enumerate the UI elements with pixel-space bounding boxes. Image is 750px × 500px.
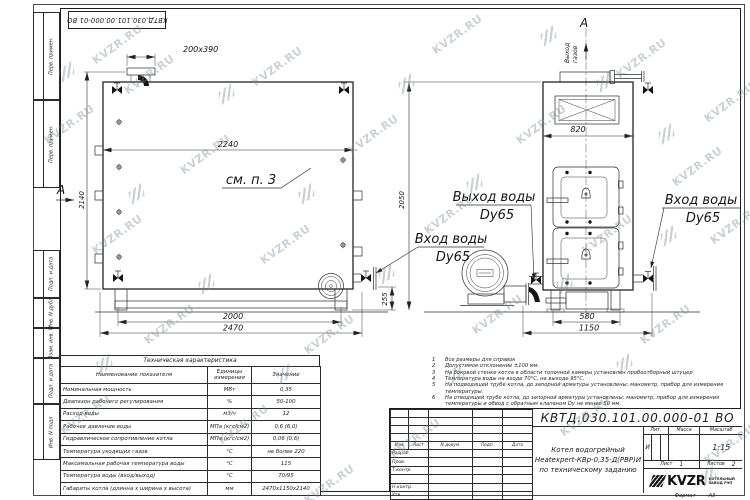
spec-cell: °С	[208, 470, 252, 482]
sign-row-label: Утв.	[391, 491, 429, 499]
spec-cell: МВт	[208, 384, 252, 396]
spec-cell: 0,35	[252, 384, 321, 396]
spec-cell: не более 220	[252, 445, 321, 457]
logo-subtitle: ЗАВОД РЭП	[709, 481, 735, 485]
spec-cell: 0,06 (0,6)	[252, 433, 321, 445]
spec-header-value: Значение	[252, 367, 321, 384]
drawing-name-line: по техническому заданию	[539, 466, 636, 474]
spec-cell: Габариты котла (длинна х ширина х высота…	[61, 483, 208, 495]
manufacturer-logo: KVZR КОТЕЛЬНЫЙ ЗАВОД РЭП	[644, 469, 742, 493]
technical-notes: 1Все размеры для справок2Допустимое откл…	[432, 357, 744, 414]
frame-column-box: Подп. и дата	[33, 250, 60, 298]
frame-left-strip: Перв. примен.Перв. примен.Подп. и датаИн…	[33, 0, 60, 500]
logo-text: KVZR	[667, 474, 705, 489]
drawing-name-cell: Котел водогрейный Heatexpert-КВр-0,35-Д(…	[532, 427, 643, 493]
drawing-name-line: Котел водогрейный	[551, 446, 625, 454]
spec-cell: °С	[208, 458, 252, 470]
spec-cell: МПа (кгс/см2)	[208, 421, 252, 433]
scale-value: 1:15	[700, 435, 742, 461]
sign-row-label: Т.контр.	[391, 466, 429, 474]
spec-row: Диапазон рабочего регулирования%50-100	[61, 396, 321, 408]
sign-row-label: Н.контр.	[391, 483, 429, 491]
format-note: Формат А3	[645, 492, 745, 500]
spec-cell: Диапазон рабочего регулирования	[61, 396, 208, 408]
title-block-right-section: Лит. Масса Масштаб И 1:15 Лист1 Листов2	[643, 427, 742, 493]
frame-column-box: Инв. N дубл	[33, 298, 60, 328]
spec-cell: мм	[208, 483, 252, 495]
mass-cell	[669, 435, 701, 461]
col-docnum: N докум.	[429, 442, 473, 450]
sign-row-label: Пров.	[391, 458, 429, 466]
doc-number-cell: КВТД.030.101.00.000-01 ВО	[532, 409, 742, 427]
spec-cell: Температура воды (вход/выход)	[61, 470, 208, 482]
col-data: Дата	[503, 442, 533, 450]
top-stamp: КВТД.030.101.00.000-01 ВО	[68, 11, 166, 29]
title-block: Изм. Лист N докум. Подп. Дата Разраб. Пр…	[389, 408, 741, 492]
title-block-left-grid: Изм. Лист N докум. Подп. Дата Разраб. Пр…	[390, 409, 533, 500]
spec-cell: 12	[252, 408, 321, 420]
frame-column-label: Взам. инв. N	[44, 329, 59, 357]
spec-cell: °С	[208, 445, 252, 457]
frame-column-box: Перв. примен.	[33, 12, 60, 100]
drawing-name-line: Heatexpert-КВр-0,35-Д(РВР)И	[535, 456, 641, 464]
spec-row: Максимальная рабочая температура воды°С1…	[61, 458, 321, 470]
sign-row-label	[391, 475, 429, 483]
note-item: 5На подводящей трубе котла, до запорной …	[432, 382, 744, 395]
spec-row: Номинальная мощностьМВт0,35	[61, 384, 321, 396]
kvzr-logo-icon	[649, 475, 666, 487]
spec-table-title: Техническая характеристика	[60, 355, 320, 366]
spec-row: Габариты котла (длинна х ширина х высота…	[61, 483, 321, 495]
spec-row: Гидравлическое сопротивление котлаМПа (к…	[61, 433, 321, 445]
frame-column-box: Взам. инв. N	[33, 328, 60, 358]
spec-cell: 70/95	[252, 470, 321, 482]
spec-cell: 0,6 (6,0)	[252, 421, 321, 433]
technical-characteristics-table: Техническая характеристика Наименование …	[60, 355, 320, 492]
spec-cell: м3/ч	[208, 408, 252, 420]
spec-row: Температура уходящих газов°Сне более 220	[61, 445, 321, 457]
spec-row: Рабочее давление водыМПа (кгс/см2)0,6 (6…	[61, 421, 321, 433]
spec-cell: Рабочее давление воды	[61, 421, 208, 433]
frame-column-label: Инв. N дубл	[44, 299, 59, 327]
frame-column-label: Перв. примен.	[44, 13, 59, 99]
spec-cell: Номинальная мощность	[61, 384, 208, 396]
sheet-cell: Лист1	[644, 461, 700, 469]
sign-row-label: Разраб.	[391, 450, 429, 458]
spec-row: Расход водым3/ч12	[61, 408, 321, 420]
frame-column-label: Перв. примен.	[44, 101, 59, 187]
col-list: Лист	[409, 442, 429, 450]
frame-column-label: Инв. N подл	[44, 405, 59, 459]
frame-column-label: Подп. и дата	[44, 359, 59, 403]
spec-row: Температура воды (вход/выход)°С70/95	[61, 470, 321, 482]
frame-column-box: Подп. и дата	[33, 358, 60, 404]
spec-header-name: Наименование показателя	[61, 367, 208, 384]
lit-header: Лит.	[644, 427, 669, 435]
spec-cell: Гидравлическое сопротивление котла	[61, 433, 208, 445]
spec-cell: 115	[252, 458, 321, 470]
spec-cell: Температура уходящих газов	[61, 445, 208, 457]
sheets-cell: Листов2	[700, 461, 742, 469]
note-item: 6На отводящей трубе котла, до запорной а…	[432, 395, 744, 408]
doc-number: КВТД.030.101.00.000-01 ВО	[541, 411, 735, 425]
spec-cell: %	[208, 396, 252, 408]
spec-cell: 2470х1150х2140	[252, 483, 321, 495]
scale-header: Масштаб	[700, 427, 742, 435]
spec-cell: МПа (кгс/см2)	[208, 433, 252, 445]
litera-cell: И	[644, 435, 652, 461]
mass-header: Масса	[669, 427, 701, 435]
col-izm: Изм.	[391, 442, 409, 450]
frame-column-box: Инв. N подл	[33, 404, 60, 460]
spec-cell: Расход воды	[61, 408, 208, 420]
frame-column-box: Перв. примен.	[33, 100, 60, 188]
spec-header-units: Единицы измерения	[208, 367, 252, 384]
drawing-sheet: 2240 см. п. 3 200x390	[0, 0, 750, 500]
col-podp: Подп.	[473, 442, 503, 450]
spec-cell: 50-100	[252, 396, 321, 408]
spec-cell: Максимальная рабочая температура воды	[61, 458, 208, 470]
frame-column-label: Подп. и дата	[44, 251, 59, 297]
top-stamp-code: КВТД.030.101.00.000-01 ВО	[67, 16, 168, 24]
